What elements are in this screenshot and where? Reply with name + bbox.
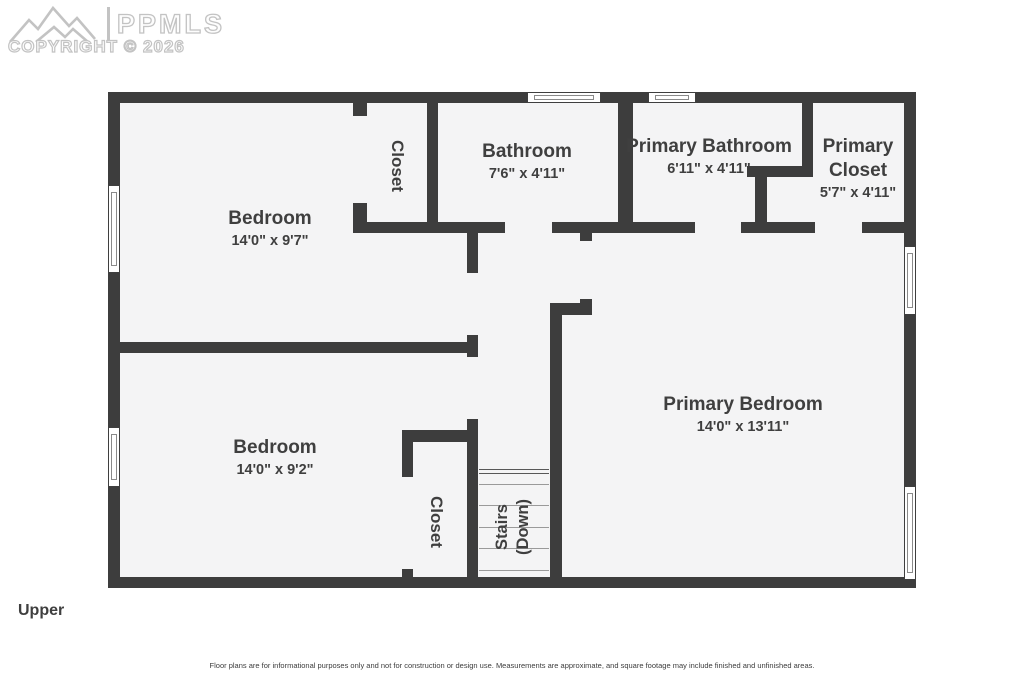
watermark-brand: PPMLS — [117, 9, 225, 40]
wall-segment — [402, 430, 413, 477]
wall-exterior-bottom — [108, 577, 916, 588]
room-label-closet-top: Closet — [385, 140, 409, 192]
window-icon — [527, 92, 601, 103]
wall-segment — [353, 103, 367, 116]
watermark-copyright: COPYRIGHT © 2026 — [8, 37, 225, 57]
stair-step-line — [479, 484, 549, 485]
disclaimer-text: Floor plans are for informational purpos… — [0, 661, 1024, 670]
watermark: PPMLS COPYRIGHT © 2026 — [8, 4, 225, 57]
room-label-closet-bottom: Closet — [424, 496, 448, 548]
window-icon — [648, 92, 696, 103]
stair-step-line — [479, 570, 549, 571]
room-label-bathroom: Bathroom 7'6" x 4'11" — [482, 140, 572, 184]
floor-name-label: Upper — [18, 602, 64, 620]
wall-segment — [467, 222, 478, 273]
stair-top-line — [479, 469, 549, 470]
window-icon — [904, 486, 916, 580]
room-label-primary-closet: Primary Closet 5'7" x 4'11" — [800, 135, 916, 203]
wall-segment — [353, 222, 505, 233]
wall-segment — [402, 430, 478, 442]
wall-segment — [580, 233, 592, 241]
window-icon — [108, 185, 120, 273]
watermark-divider — [107, 7, 110, 41]
room-label-stairs: Stairs (Down) — [492, 499, 534, 555]
wall-segment — [467, 419, 478, 588]
wall-segment — [552, 222, 695, 233]
room-label-primary-bathroom: Primary Bathroom 6'11" x 4'11" — [626, 135, 792, 179]
floor-plan-page: PPMLS COPYRIGHT © 2026 — [0, 0, 1024, 682]
stair-top-line — [479, 473, 549, 474]
wall-exterior-top — [108, 92, 916, 103]
window-icon — [108, 427, 120, 487]
wall-segment — [550, 303, 592, 315]
room-label-bedroom-top: Bedroom 14'0" x 9'7" — [228, 207, 311, 251]
wall-segment — [427, 103, 438, 233]
wall-exterior-left — [108, 92, 120, 588]
room-label-primary-bedroom: Primary Bedroom 14'0" x 13'11" — [663, 393, 822, 437]
room-label-bedroom-bottom: Bedroom 14'0" x 9'2" — [233, 436, 316, 480]
wall-segment — [741, 222, 815, 233]
wall-segment — [402, 569, 413, 588]
window-icon — [904, 246, 916, 315]
wall-segment — [550, 315, 562, 588]
wall-segment — [862, 222, 906, 233]
wall-segment — [108, 342, 478, 353]
